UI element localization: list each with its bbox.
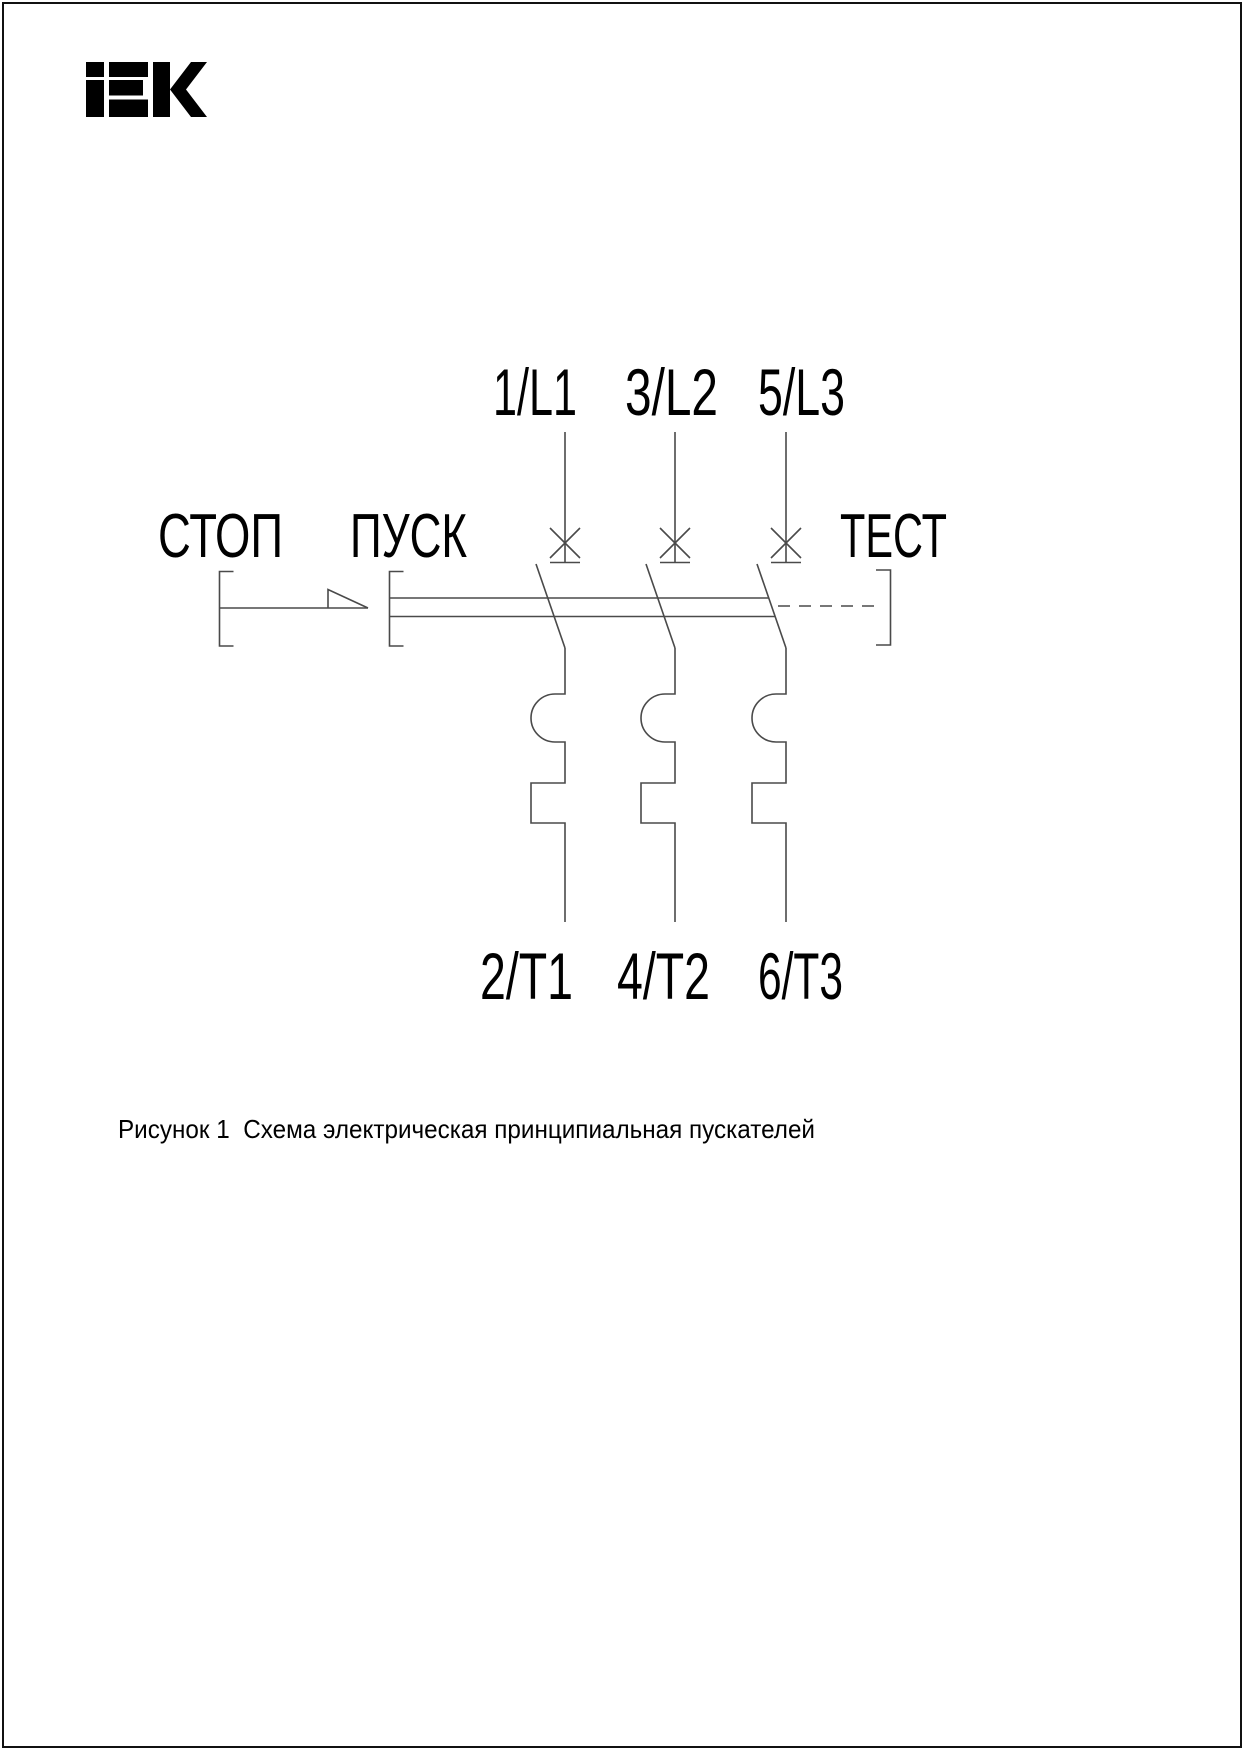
figure-caption: Рисунок 1 Схема электрическая принципиал…: [118, 1114, 815, 1144]
start-pushbutton-symbol: [390, 572, 404, 647]
test-label: ТЕСТ: [840, 502, 947, 571]
pole-1: [531, 432, 580, 922]
pole-3: [752, 432, 801, 922]
pole-2: [641, 432, 690, 922]
pole-1-contact-blade: [536, 564, 565, 648]
pole-2-release-element-line: [641, 648, 675, 922]
circuit-schematic: СТОП ПУСК ТЕСТ 1/L1 3/L2 5/L3 2/T1 4/T2 …: [0, 0, 1244, 1750]
test-contact-bracket: [876, 570, 891, 645]
pole-1-release-element-line: [531, 648, 565, 922]
document-page: СТОП ПУСК ТЕСТ 1/L1 3/L2 5/L3 2/T1 4/T2 …: [0, 0, 1244, 1750]
stop-pushbutton-symbol: [220, 572, 369, 647]
pole-3-release-element-line: [752, 648, 786, 922]
pole-2-top-terminal-label: 3/L2: [625, 355, 718, 429]
stop-actuator-wedge: [328, 590, 368, 609]
start-contact-bracket: [390, 572, 404, 647]
pole-2-contact-blade: [646, 564, 675, 648]
pole-3-bottom-terminal-label: 6/T3: [758, 939, 843, 1013]
pole-1-top-terminal-label: 1/L1: [493, 355, 577, 429]
pole-3-top-terminal-label: 5/L3: [758, 355, 845, 429]
pole-1-bottom-terminal-label: 2/T1: [480, 939, 573, 1013]
stop-label: СТОП: [158, 502, 283, 571]
test-pushbutton-symbol: [876, 570, 891, 645]
start-label: ПУСК: [350, 502, 467, 571]
pole-2-bottom-terminal-label: 4/T2: [617, 939, 710, 1013]
